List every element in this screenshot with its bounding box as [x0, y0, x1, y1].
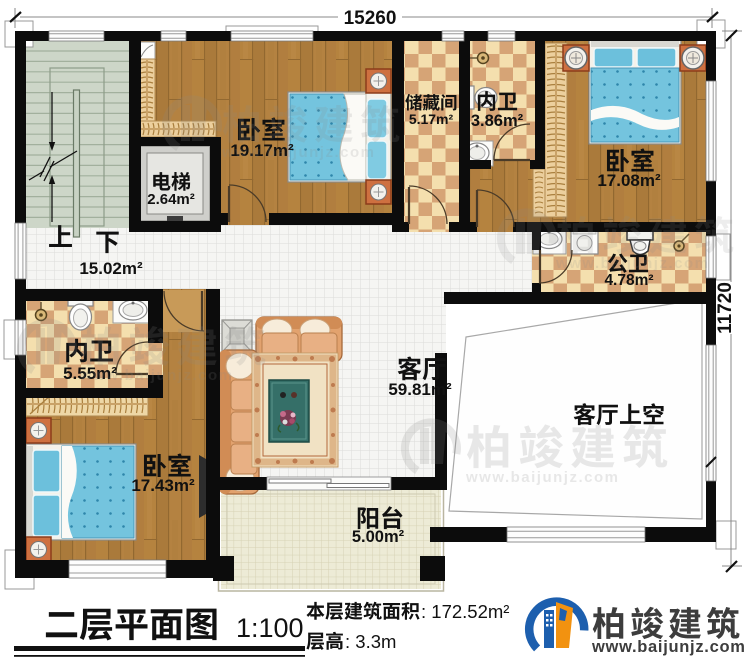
svg-text:3.86m²: 3.86m²: [471, 112, 524, 130]
svg-text:17.43m²: 17.43m²: [131, 476, 195, 495]
svg-text:1:100: 1:100: [236, 613, 304, 643]
svg-text:www.baijunjz.com: www.baijunjz.com: [221, 144, 375, 161]
svg-text:17.08m²: 17.08m²: [597, 171, 661, 190]
svg-text:www.baijunjz.com: www.baijunjz.com: [79, 367, 233, 384]
svg-text:5.00m²: 5.00m²: [352, 528, 405, 546]
svg-text:4.78m²: 4.78m²: [604, 272, 653, 289]
svg-text:: 3.3m: : 3.3m: [345, 631, 396, 652]
svg-text:5.17m²: 5.17m²: [409, 111, 454, 127]
svg-text:www.baijunjz.com: www.baijunjz.com: [555, 255, 709, 272]
svg-text:11720: 11720: [715, 282, 736, 334]
svg-text:: 172.52m²: : 172.52m²: [421, 601, 509, 622]
svg-text:www.baijunjz.com: www.baijunjz.com: [465, 469, 619, 486]
svg-text:2.64m²: 2.64m²: [147, 191, 195, 208]
svg-text:15260: 15260: [344, 8, 397, 29]
svg-text:www.baijunjz.com: www.baijunjz.com: [591, 638, 746, 656]
svg-text:59.81m²: 59.81m²: [388, 380, 452, 399]
svg-text:15.02m²: 15.02m²: [79, 259, 143, 278]
